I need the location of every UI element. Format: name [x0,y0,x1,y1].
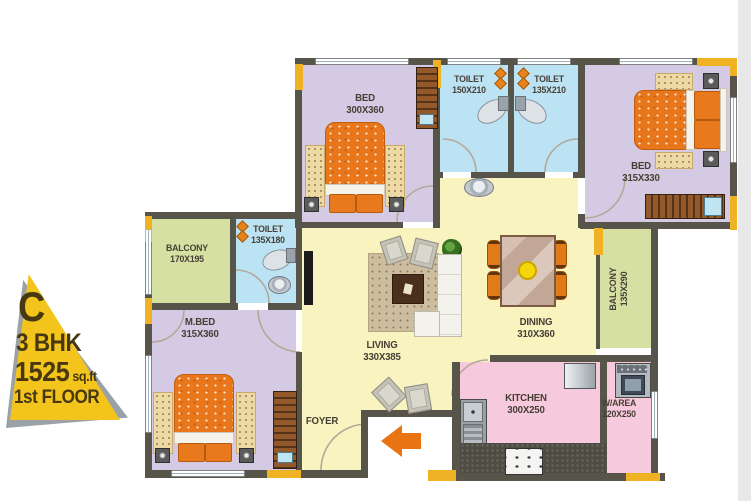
badge-area-unit: sq.ft [69,368,96,384]
room-label-living: LIVING 330X385 [336,340,428,364]
floor-plan-page: BED 300X360 TOILET 150X210 TOILET 135X21… [0,0,751,501]
wall-segment [295,222,403,228]
room-dims: 150X210 [437,86,501,97]
room-label-foyer: FOYER [296,416,348,428]
wall-segment [580,222,737,229]
sofa [437,254,462,337]
badge-floor: 1st FLOOR [14,388,99,407]
kitchen-drainboard [463,424,483,444]
column-marker [594,228,603,255]
dining-chair [487,240,501,269]
room-name: KITCHEN [480,393,572,405]
bedside-table [304,197,319,212]
room-dims: 310X360 [490,329,582,341]
column-marker [267,470,301,478]
washing-machine-panel [617,365,647,373]
room-label-mbed: M.BED 315X360 [154,317,246,341]
window [316,59,408,64]
wall-segment [452,362,460,478]
column-marker [145,298,152,324]
room-label-bed1: BED 300X360 [319,93,411,117]
wall-segment [230,219,236,303]
bedside-table [703,73,719,89]
wall-segment [145,212,302,219]
column-marker [730,196,737,230]
room-name: DINING [490,317,582,329]
badge-type: 3 BHK [16,331,81,356]
page-edge-strip [738,0,751,501]
wall-segment [152,303,238,310]
room-dims: 170X195 [150,255,224,266]
room-dims: 135X180 [240,236,295,247]
tv-unit [304,251,313,305]
room-dims: 330X385 [336,352,428,364]
door-arc-mbed [258,310,300,352]
room-label-toilet2: TOILET 135X210 [517,75,581,96]
bedside-rug [236,392,256,454]
room-dims: 135X210 [517,86,581,97]
room-label-balcony1: BALCONY 170X195 [150,244,224,265]
bedside-table [389,197,404,212]
bed-quilt [174,374,234,434]
bedside-table [703,151,719,167]
room-label-balcony2: BALCONY 135X290 [609,251,635,327]
bed-headboard [720,88,727,152]
wall-segment [490,355,658,362]
wardrobe-shelf [419,114,434,125]
badge-unit-letter: C [18,286,45,328]
room-label-kitchen: KITCHEN 300X250 [480,393,572,417]
wall-segment [573,172,585,178]
wash-basin [464,178,494,197]
bed-blanket [356,194,383,213]
window [731,98,736,162]
wall-segment [471,172,545,178]
toilet-cistern [286,248,296,263]
room-label-warea: W/AREA 120X250 [588,399,651,420]
door-arc-toilet1 [443,139,476,172]
toilet-cistern [515,96,526,111]
bedside-table [155,448,170,463]
window [448,59,500,64]
toilet-cistern [498,96,509,111]
wardrobe-shelf [704,197,722,216]
entry-arrow-icon [381,425,402,457]
sofa-corner [414,311,440,337]
room-dims: 135X290 [620,251,631,327]
column-marker [697,58,733,66]
badge-area-value: 1525 [15,356,69,387]
washing-machine-door [621,375,645,395]
armchair [404,383,432,414]
window [652,392,657,438]
room-label-bed2: BED 315X330 [595,161,687,185]
column-marker [428,470,456,481]
room-dims: 300X250 [480,405,572,417]
bedside-rug [153,392,173,454]
room-name: BED [595,161,687,173]
entry-arrow-icon [402,433,421,449]
column-marker [626,473,660,481]
bed-pillow [694,91,721,120]
bed-blanket [329,194,356,213]
room-label-toilet1: TOILET 150X210 [437,75,501,96]
room-label-dining: DINING 310X360 [490,317,582,341]
column-marker [730,58,737,76]
room-name: BED [319,93,411,105]
window [518,59,570,64]
room-name: FOYER [296,416,348,428]
door-arc-toilet2 [545,139,578,172]
room-name: M.BED [154,317,246,329]
window [172,471,244,476]
room-label-toilet3: TOILET 135X180 [240,225,295,246]
coffee-table [392,274,424,304]
bed-quilt [325,122,385,186]
bedside-table [239,448,254,463]
wardrobe-shelf [277,452,293,463]
dining-chair [487,271,501,300]
bed-blanket [178,443,205,462]
wall-segment [508,65,514,172]
room-dims: 120X250 [588,410,651,421]
wall-segment [651,222,658,481]
bed-pillow [694,120,721,149]
wash-basin [268,276,291,294]
wall-segment [433,172,443,178]
door-arc-toilet3 [236,270,269,303]
cooktop-hob [505,448,543,475]
room-dims: 315X360 [154,329,246,341]
bed-blanket [205,443,232,462]
room-dims: 315X330 [595,173,687,185]
wall-segment [361,410,452,417]
refrigerator [564,363,596,389]
column-marker [295,64,303,90]
window [146,356,151,432]
unit-badge: C 3 BHK 1525 sq.ft 1st FLOOR [6,272,132,428]
bed-quilt [634,90,688,150]
wall-segment [361,412,368,478]
room-name: LIVING [336,340,428,352]
bedside-rug [655,73,693,90]
table-centerpiece [518,261,537,280]
wall-segment [296,212,302,310]
badge-area: 1525 sq.ft [15,358,97,386]
wall-segment [302,470,368,478]
window [620,59,692,64]
room-dims: 300X360 [319,105,411,117]
